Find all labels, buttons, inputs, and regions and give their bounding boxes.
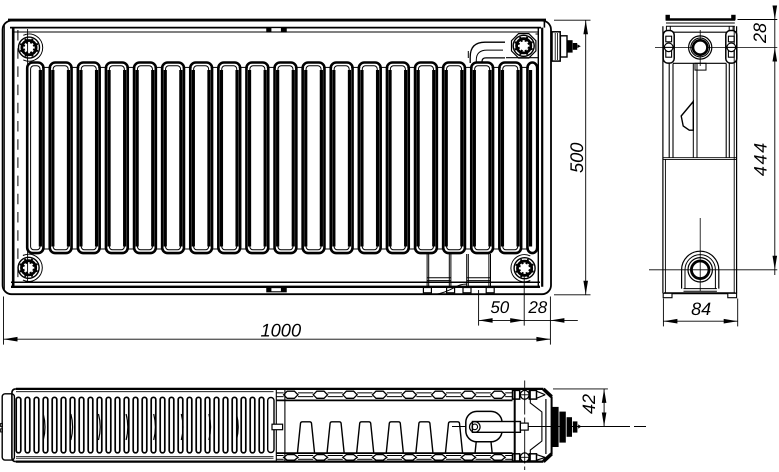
svg-text:1000: 1000: [260, 319, 302, 340]
svg-text:500: 500: [566, 142, 587, 173]
svg-text:84: 84: [691, 299, 711, 319]
svg-text:28: 28: [527, 298, 547, 317]
svg-text:28: 28: [750, 23, 770, 44]
svg-text:42: 42: [579, 394, 599, 414]
svg-text:444: 444: [751, 141, 771, 176]
svg-text:50: 50: [490, 298, 509, 317]
